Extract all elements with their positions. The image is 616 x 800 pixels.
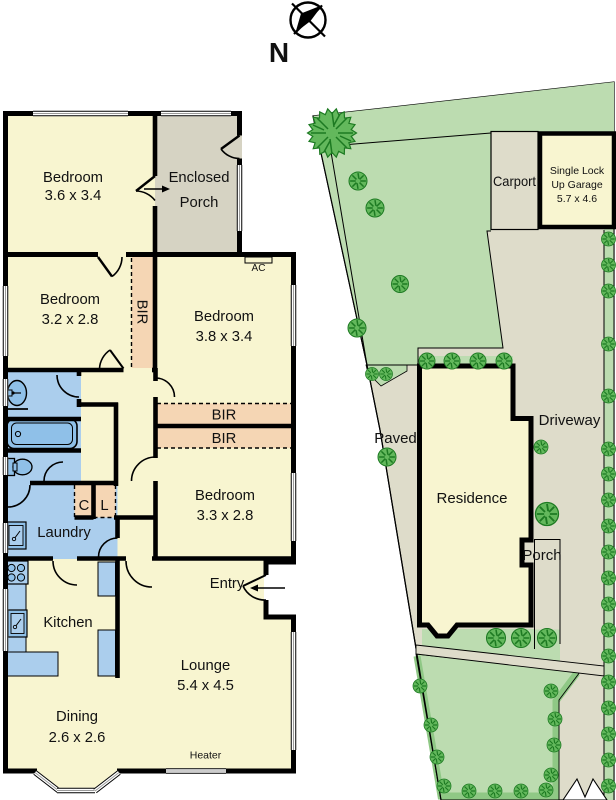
svg-text:Porch: Porch bbox=[522, 547, 561, 564]
svg-text:Carport: Carport bbox=[493, 173, 536, 189]
svg-text:Paved: Paved bbox=[374, 430, 417, 447]
svg-text:Residence: Residence bbox=[437, 490, 508, 507]
svg-text:Porch: Porch bbox=[180, 195, 219, 211]
svg-text:BIR: BIR bbox=[212, 431, 237, 447]
svg-text:BIR: BIR bbox=[134, 300, 150, 325]
svg-text:5.7 x 4.6: 5.7 x 4.6 bbox=[557, 193, 597, 205]
svg-text:Enclosed: Enclosed bbox=[169, 170, 230, 186]
svg-text:BIR: BIR bbox=[212, 408, 237, 424]
svg-text:3.6 x 3.4: 3.6 x 3.4 bbox=[45, 188, 102, 204]
svg-text:Lounge: Lounge bbox=[181, 658, 230, 674]
svg-text:Laundry: Laundry bbox=[37, 525, 91, 541]
svg-text:Up Garage: Up Garage bbox=[551, 179, 603, 191]
svg-text:AC: AC bbox=[252, 263, 266, 274]
svg-text:Driveway: Driveway bbox=[539, 412, 601, 429]
svg-text:C: C bbox=[79, 498, 90, 514]
svg-text:3.3 x 2.8: 3.3 x 2.8 bbox=[197, 508, 254, 524]
svg-text:3.8 x 3.4: 3.8 x 3.4 bbox=[196, 329, 253, 345]
svg-text:Single Lock: Single Lock bbox=[550, 165, 605, 177]
svg-text:N: N bbox=[269, 37, 289, 68]
svg-text:5.4 x 4.5: 5.4 x 4.5 bbox=[177, 678, 234, 694]
svg-text:L: L bbox=[100, 498, 108, 514]
svg-text:Bedroom: Bedroom bbox=[40, 292, 100, 308]
svg-text:2.6 x 2.6: 2.6 x 2.6 bbox=[49, 730, 106, 746]
svg-text:Bedroom: Bedroom bbox=[194, 309, 254, 325]
svg-text:Heater: Heater bbox=[190, 750, 222, 762]
svg-text:Bedroom: Bedroom bbox=[195, 488, 255, 504]
svg-text:Kitchen: Kitchen bbox=[43, 615, 92, 631]
svg-text:Dining: Dining bbox=[56, 709, 98, 725]
svg-text:Entry: Entry bbox=[210, 576, 245, 592]
svg-text:3.2 x 2.8: 3.2 x 2.8 bbox=[42, 312, 99, 328]
svg-text:Bedroom: Bedroom bbox=[43, 170, 103, 186]
